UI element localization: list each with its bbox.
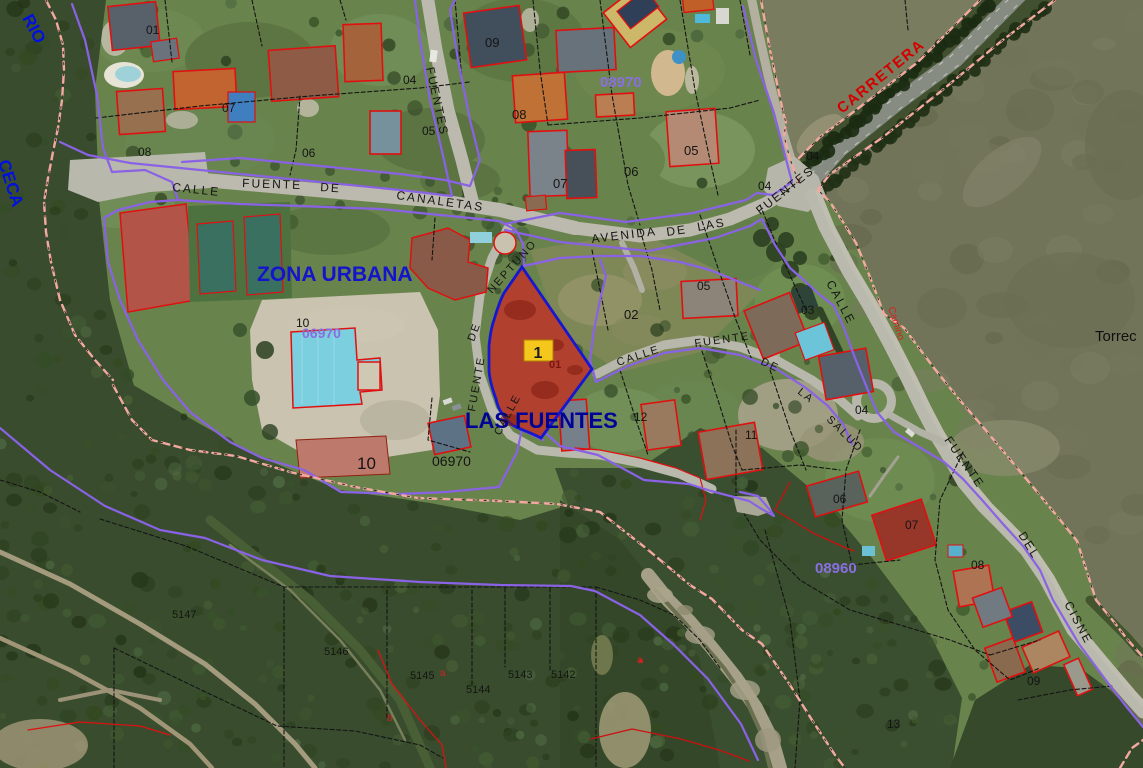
svg-text:04: 04: [403, 73, 417, 87]
svg-text:08: 08: [138, 145, 152, 159]
svg-text:05: 05: [422, 124, 436, 138]
svg-text:04: 04: [806, 149, 820, 163]
svg-text:5147: 5147: [172, 609, 196, 621]
svg-text:10: 10: [357, 454, 376, 473]
svg-text:05: 05: [684, 143, 698, 158]
svg-text:07: 07: [222, 101, 236, 115]
svg-text:06: 06: [833, 492, 847, 506]
svg-text:08: 08: [971, 558, 985, 572]
svg-text:07: 07: [553, 176, 567, 191]
svg-text:Torrec: Torrec: [1095, 328, 1137, 345]
svg-text:04: 04: [855, 403, 869, 417]
svg-text:5146: 5146: [324, 646, 348, 658]
svg-text:5144: 5144: [466, 684, 490, 696]
svg-text:ZONA URBANA: ZONA URBANA: [257, 263, 413, 286]
svg-text:06: 06: [624, 164, 638, 179]
svg-text:13: 13: [887, 717, 901, 731]
svg-text:10: 10: [296, 316, 310, 330]
svg-text:1: 1: [534, 345, 543, 362]
svg-text:03: 03: [801, 303, 815, 317]
svg-text:01: 01: [549, 359, 561, 371]
svg-text:02: 02: [624, 307, 638, 322]
svg-text:06970: 06970: [432, 453, 471, 469]
svg-text:08970: 08970: [600, 74, 642, 91]
svg-text:04: 04: [758, 179, 772, 193]
svg-text:12: 12: [634, 410, 648, 424]
svg-text:06: 06: [302, 146, 316, 160]
svg-text:01: 01: [146, 23, 160, 37]
svg-text:DE: DE: [665, 222, 687, 239]
svg-text:5145: 5145: [410, 670, 434, 682]
svg-text:5143: 5143: [508, 669, 532, 681]
svg-text:DE: DE: [320, 180, 342, 195]
svg-text:FUENTE: FUENTE: [242, 176, 302, 192]
svg-text:05: 05: [697, 279, 711, 293]
svg-text:09: 09: [485, 35, 499, 50]
svg-text:09: 09: [1027, 674, 1041, 688]
svg-text:5142: 5142: [551, 669, 575, 681]
svg-text:08: 08: [512, 107, 526, 122]
svg-text:LAS FUENTES: LAS FUENTES: [465, 408, 618, 433]
svg-text:11: 11: [745, 428, 758, 442]
svg-text:08960: 08960: [815, 560, 857, 577]
svg-text:a: a: [440, 668, 446, 679]
svg-text:b: b: [387, 713, 393, 724]
svg-text:07: 07: [905, 518, 919, 532]
